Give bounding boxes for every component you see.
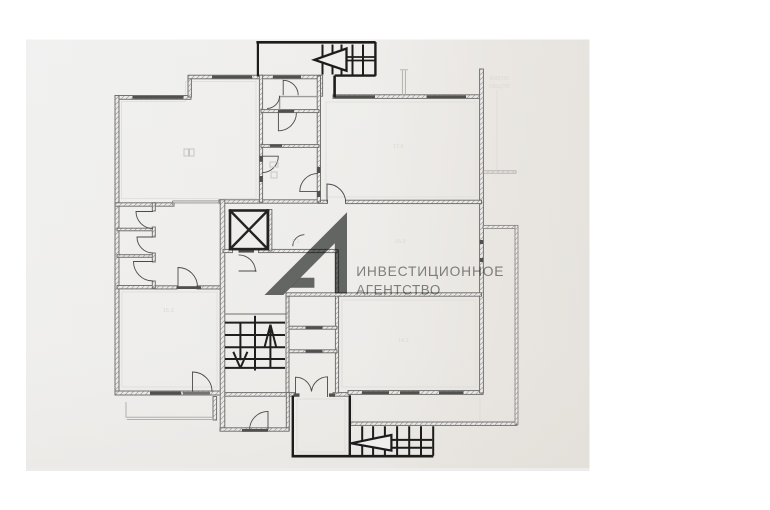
svg-text:16.9: 16.9 bbox=[395, 239, 406, 245]
svg-text:ОБЩ.ПЛ: ОБЩ.ПЛ bbox=[489, 84, 509, 90]
svg-text:5.2: 5.2 bbox=[292, 239, 300, 245]
svg-text:ЖИЛ.ПЛ: ЖИЛ.ПЛ bbox=[489, 76, 509, 82]
svg-text:14.2: 14.2 bbox=[398, 338, 409, 344]
svg-text:АГЕНТСТВО: АГЕНТСТВО bbox=[356, 283, 441, 298]
svg-text:ИНВЕСТИЦИОННОЕ: ИНВЕСТИЦИОННОЕ bbox=[356, 264, 504, 279]
svg-text:17.6: 17.6 bbox=[393, 144, 404, 150]
svg-text:15.3: 15.3 bbox=[163, 308, 174, 314]
